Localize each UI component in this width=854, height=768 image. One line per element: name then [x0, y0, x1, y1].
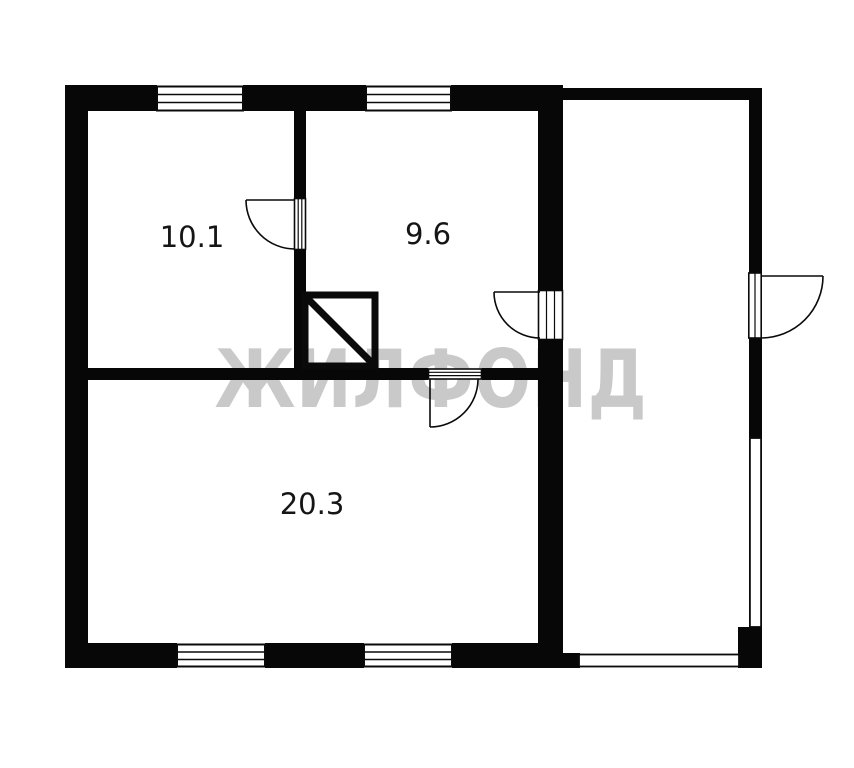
window-icon: [177, 645, 265, 667]
veranda-wall-top: [563, 88, 762, 100]
wall-bottom-segment: [65, 643, 177, 668]
room-area-label-9-6: 9.6: [405, 217, 451, 251]
floor-plan-canvas: ЖИЛФОНД: [0, 0, 854, 768]
wall-interior-horizontal-segment: [88, 368, 428, 380]
wall-bottom-segment: [265, 643, 364, 668]
wall-right-segment: [538, 340, 563, 668]
room-area-label-10-1: 10.1: [160, 220, 225, 254]
veranda-wall-bottom-stub: [563, 653, 580, 668]
veranda-wall-right-segment: [749, 338, 762, 438]
veranda-wall-right-segment: [749, 88, 762, 273]
wall-top-segment: [243, 85, 366, 111]
wall-interior-horizontal-segment: [482, 368, 538, 380]
wall-top-segment: [65, 85, 157, 111]
room-area-label-20-3: 20.3: [280, 487, 345, 521]
window-icon: [366, 87, 451, 111]
window-icon: [157, 87, 243, 111]
wall-interior-vertical-segment: [294, 111, 306, 198]
veranda-wall-corner: [738, 627, 762, 668]
veranda-window-band-bottom: [579, 655, 739, 667]
wall-right-segment: [538, 85, 563, 290]
window-icon: [364, 645, 452, 667]
wall-left: [65, 85, 88, 668]
veranda-window-band-right: [750, 438, 761, 627]
floor-plan-drawing: ЖИЛФОНД: [0, 0, 854, 768]
